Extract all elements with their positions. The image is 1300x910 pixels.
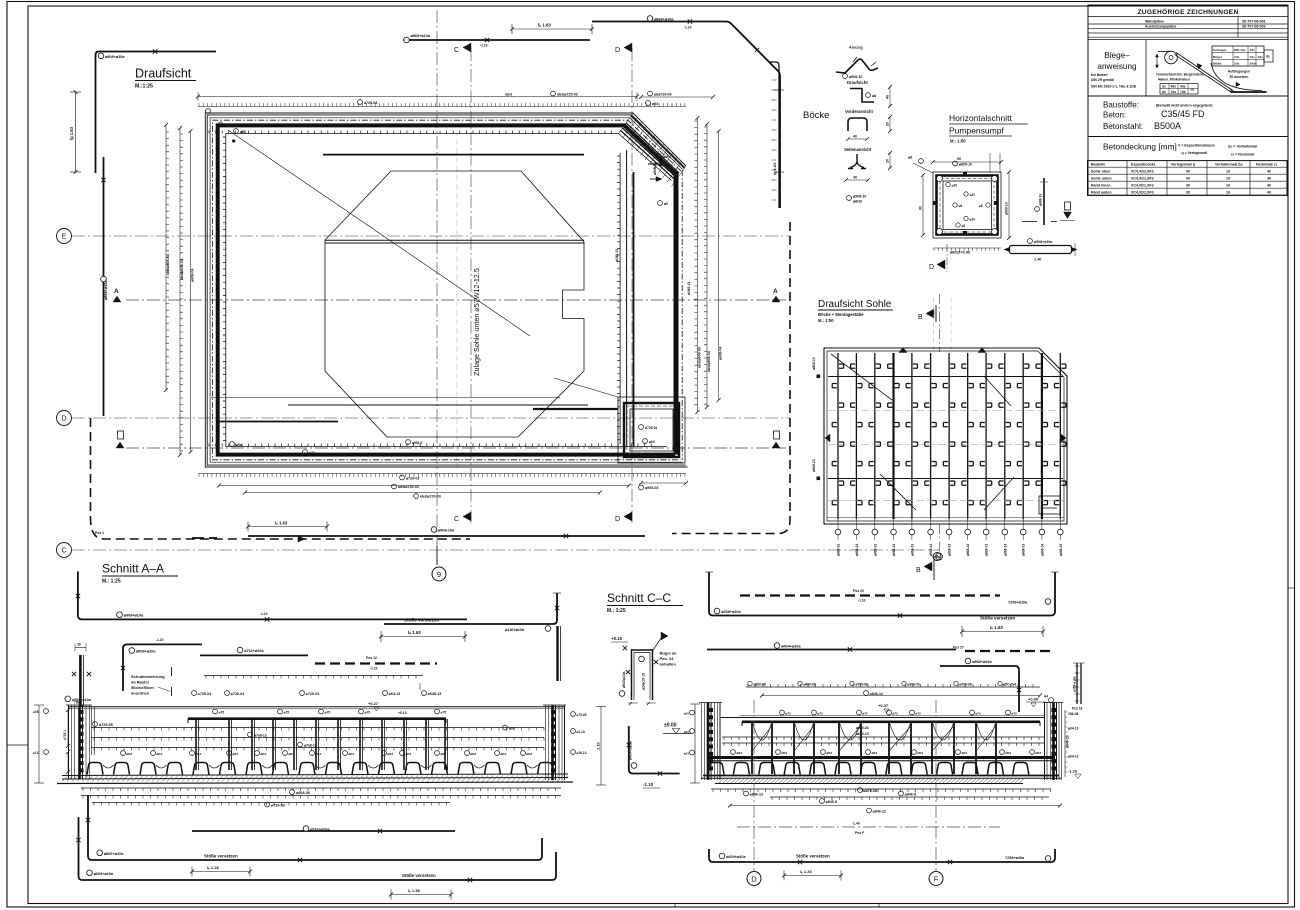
svg-text:⌀64-13: ⌀64-13 <box>389 692 401 696</box>
svg-text:⌀808-13: ⌀808-13 <box>1039 194 1043 206</box>
svg-text:⌀808-13: ⌀808-13 <box>985 544 989 556</box>
svg-text:⌀905-03: ⌀905-03 <box>645 486 658 490</box>
svg-text:90: 90 <box>957 157 961 161</box>
svg-text:⌀460-08: ⌀460-08 <box>803 683 815 687</box>
svg-text:⌀04: ⌀04 <box>649 440 655 444</box>
svg-text:⌀908+⌀10a: ⌀908+⌀10a <box>1034 240 1053 244</box>
svg-text:2ds: 2ds <box>1258 55 1264 59</box>
svg-text:bei Bedarf: bei Bedarf <box>1091 73 1108 77</box>
svg-text:Expositionskl.: Expositionskl. <box>1131 162 1156 166</box>
svg-text:⌀7a8-13: ⌀7a8-13 <box>304 744 317 748</box>
svg-text:⌀640-13: ⌀640-13 <box>856 732 869 736</box>
svg-text:⌀03: ⌀03 <box>652 102 658 106</box>
svg-text:⌀B4: ⌀B4 <box>440 752 446 756</box>
svg-text:⌀25: ⌀25 <box>684 712 690 716</box>
svg-text:⌀868+⌀10a: ⌀868+⌀10a <box>411 34 431 38</box>
svg-text:Böcke: Böcke <box>803 110 829 121</box>
svg-text:2ds: 2ds <box>1234 55 1240 59</box>
svg-text:⌀866+⌀10a: ⌀866+⌀10a <box>104 852 124 856</box>
svg-text:⌀808-13: ⌀808-13 <box>812 357 816 370</box>
svg-text:⌀B4: ⌀B4 <box>387 752 393 756</box>
svg-text:Ausrüstungspläne: Ausrüstungspläne <box>1145 25 1177 29</box>
svg-text:9: 9 <box>437 570 441 579</box>
svg-text:ds: ds <box>1162 90 1166 94</box>
svg-text:⌀725-1: ⌀725-1 <box>63 730 67 740</box>
svg-text:⌀908-14: ⌀908-14 <box>1040 544 1044 556</box>
svg-text:Haken, Winkelhaken: Haken, Winkelhaken <box>1158 78 1190 82</box>
svg-text:⌀808-13: ⌀808-13 <box>837 544 841 556</box>
svg-text:⌀808-04: ⌀808-04 <box>653 162 657 175</box>
svg-text:⌀75: ⌀75 <box>365 711 371 715</box>
svg-text:Pos. 24: Pos. 24 <box>660 656 675 661</box>
svg-text:⌀B4: ⌀B4 <box>156 752 162 756</box>
svg-text:Verlegemaß q: Verlegemaß q <box>1171 162 1195 166</box>
svg-text:⌀75: ⌀75 <box>219 711 225 715</box>
svg-text:C: C <box>454 47 459 54</box>
svg-text:⌀908+⌀10a: ⌀908+⌀10a <box>105 55 125 59</box>
svg-text:⌀808-13: ⌀808-13 <box>1059 544 1063 556</box>
svg-text:Schnitt A–A: Schnitt A–A <box>102 562 164 576</box>
svg-text:lₖ 1.33: lₖ 1.33 <box>800 869 812 874</box>
svg-text:⌀870-08: ⌀870-08 <box>864 789 877 793</box>
svg-text:C: C <box>61 548 66 555</box>
svg-text:-1.20: -1.20 <box>1068 769 1078 774</box>
svg-text:⌀908-14: ⌀908-14 <box>929 544 933 556</box>
svg-text:Biege–: Biege– <box>1104 51 1130 60</box>
svg-text:⌀110+⌀10a: ⌀110+⌀10a <box>505 628 525 632</box>
svg-text:-1.10: -1.10 <box>684 26 692 30</box>
svg-text:⌀03: ⌀03 <box>509 727 515 731</box>
svg-text:-1.10: -1.10 <box>643 782 654 787</box>
svg-text:40: 40 <box>886 95 890 99</box>
svg-text:⌀700-08: ⌀700-08 <box>959 683 971 687</box>
svg-text:⌀8: ⌀8 <box>959 204 963 208</box>
svg-text:lₖ 1.63: lₖ 1.63 <box>408 630 421 635</box>
svg-text:7ds: 7ds <box>1250 55 1256 59</box>
svg-text:30: 30 <box>1186 176 1190 180</box>
svg-text:E: E <box>62 234 67 241</box>
svg-text:⌀846-12: ⌀846-12 <box>873 810 886 814</box>
svg-text:Vorhaltemaß Δc: Vorhaltemaß Δc <box>1215 162 1243 166</box>
svg-text:Horizontalschnitt: Horizontalschnitt <box>949 113 1012 123</box>
svg-text:⌀B4: ⌀B4 <box>405 752 411 756</box>
svg-text:⌀75: ⌀75 <box>284 711 290 715</box>
svg-text:im Raster: im Raster <box>131 680 150 685</box>
svg-text:+0.10: +0.10 <box>611 636 623 641</box>
svg-text:-1.10: -1.10 <box>260 612 268 616</box>
svg-text:B: B <box>918 314 923 321</box>
svg-text:⌀846-8: ⌀846-8 <box>826 800 837 804</box>
svg-text:abst⌀729-03: abst⌀729-03 <box>420 495 441 499</box>
svg-text:2ds: 2ds <box>1234 62 1240 66</box>
svg-text:(Bemaßt nicht anders angegeben: (Bemaßt nicht anders angegeben) <box>1156 104 1212 108</box>
svg-text:anordnen: anordnen <box>131 691 150 696</box>
svg-text:⌀B4: ⌀B4 <box>260 752 266 756</box>
svg-text:⌀725-04: ⌀725-04 <box>645 426 657 430</box>
svg-text:⌀846-8: ⌀846-8 <box>905 793 916 797</box>
svg-text:⌀20: ⌀20 <box>970 193 976 197</box>
svg-text:⌀75: ⌀75 <box>1011 712 1017 716</box>
svg-text:⌀360-7a: ⌀360-7a <box>907 683 919 687</box>
svg-text:B500A: B500A <box>1154 121 1181 131</box>
svg-text:anweisung: anweisung <box>1097 62 1137 71</box>
svg-text:⌀729-03: ⌀729-03 <box>406 477 419 481</box>
svg-text:D: D <box>61 416 66 423</box>
svg-text:⌀75: ⌀75 <box>892 712 898 716</box>
svg-text:lₖ 1.63: lₖ 1.63 <box>990 625 1003 630</box>
svg-text:⌀908-10: ⌀908-10 <box>853 195 866 199</box>
svg-text:M.: 1:50: M.: 1:50 <box>950 139 966 144</box>
svg-text:D: D <box>615 516 620 523</box>
svg-text:⌀80: ⌀80 <box>663 155 669 159</box>
svg-text:10: 10 <box>1226 190 1230 194</box>
svg-text:1.10: 1.10 <box>596 741 601 750</box>
svg-text:X = Expositionsklasse: X = Expositionsklasse <box>1178 144 1215 148</box>
svg-text:⌀13: ⌀13 <box>684 752 690 756</box>
svg-text:abst⌀729-03: abst⌀729-03 <box>557 93 578 97</box>
svg-text:⌀2-13: ⌀2-13 <box>576 730 585 734</box>
svg-text:C: C <box>454 516 459 523</box>
svg-text:20: 20 <box>886 159 890 163</box>
svg-text:⌀75: ⌀75 <box>785 712 791 716</box>
svg-text:-1.10: -1.10 <box>858 599 866 603</box>
svg-text:⌀05: ⌀05 <box>33 710 39 714</box>
svg-text:Stöße versetzen: Stöße versetzen <box>980 616 1015 621</box>
svg-text:Beton:: Beton: <box>1103 111 1126 120</box>
svg-text:⌀8: ⌀8 <box>872 94 876 98</box>
svg-text:Bauteile: Bauteile <box>1091 162 1105 166</box>
svg-text:⌀761+⌀10a: ⌀761+⌀10a <box>244 649 264 653</box>
svg-text:⌀500-13: ⌀500-13 <box>1005 202 1009 215</box>
svg-text:Stöße versetzen: Stöße versetzen <box>796 854 830 859</box>
svg-text:⌀8/20: ⌀8/20 <box>853 200 862 204</box>
svg-text:20ds: 20ds <box>1250 62 1257 66</box>
svg-text:⌀75: ⌀75 <box>441 711 447 715</box>
svg-text:Pos 1: Pos 1 <box>95 531 104 535</box>
svg-text:⌀908-14: ⌀908-14 <box>892 544 896 556</box>
svg-text:Rand innen: Rand innen <box>1091 183 1111 187</box>
svg-text:7258+⌀10a: 7258+⌀10a <box>1008 601 1028 605</box>
svg-text:⌀B4: ⌀B4 <box>348 752 354 756</box>
svg-text:⌀1N5-13: ⌀1N5-13 <box>687 282 691 295</box>
svg-text:B: B <box>916 567 921 574</box>
svg-text:Wandpläne: Wandpläne <box>1145 19 1164 23</box>
svg-text:+0.90: +0.90 <box>1028 697 1039 702</box>
svg-text:⌀B4: ⌀B4 <box>826 751 832 755</box>
svg-text:40: 40 <box>853 135 857 139</box>
svg-text:⌀846-13: ⌀846-13 <box>1066 735 1070 748</box>
svg-text:⌀B4: ⌀B4 <box>288 752 294 756</box>
svg-text:75B: 75B <box>74 701 81 705</box>
svg-text:⌀908-14: ⌀908-14 <box>855 544 859 556</box>
svg-text:abst: abst <box>505 93 513 97</box>
svg-text:Sohle unten: Sohle unten <box>1091 176 1112 180</box>
svg-text:⌀808-13: ⌀808-13 <box>1022 544 1026 556</box>
svg-text:⌀952-0: ⌀952-0 <box>412 441 423 445</box>
svg-text:lₖ 1.63: lₖ 1.63 <box>538 23 551 28</box>
svg-text:DIN 4ds: DIN 4ds <box>1234 48 1246 52</box>
svg-text:⌀B4: ⌀B4 <box>736 751 742 755</box>
svg-text:cₖ = Nennmaß: cₖ = Nennmaß <box>1231 153 1255 157</box>
svg-text:⌀36-13: ⌀36-13 <box>576 751 586 755</box>
svg-text:DIN EN 1992-1-1, Tab. 8.1DE: DIN EN 1992-1-1, Tab. 8.1DE <box>1091 85 1137 89</box>
svg-text:Draufsicht: Draufsicht <box>135 67 192 81</box>
svg-text:⌀808-13: ⌀808-13 <box>873 544 877 556</box>
svg-text:Betonstahl:: Betonstahl: <box>1103 122 1143 131</box>
svg-text:-1.10: -1.10 <box>156 638 164 642</box>
svg-text:lg 1.63: lg 1.63 <box>772 162 777 175</box>
svg-text:⌀908-14: ⌀908-14 <box>1003 544 1007 556</box>
svg-text:30-707-08-002: 30-707-08-002 <box>1242 25 1266 29</box>
svg-text:⌀20: ⌀20 <box>970 218 976 222</box>
svg-text:50 ansetzen: 50 ansetzen <box>1230 75 1249 79</box>
svg-text:q = Verlegemaß: q = Verlegemaß <box>1182 151 1209 155</box>
svg-text:Pos 20: Pos 20 <box>853 589 864 593</box>
svg-text:⌀B4: ⌀B4 <box>526 752 532 756</box>
svg-text:XC4,XD1,XF3: XC4,XD1,XF3 <box>1131 190 1154 194</box>
svg-text:⌀608-04: ⌀608-04 <box>191 269 195 282</box>
svg-text:Stöße versetzen: Stöße versetzen <box>402 873 436 878</box>
svg-text:abst⌀608-04: abst⌀608-04 <box>180 259 184 280</box>
svg-text:⌀B4: ⌀B4 <box>195 752 201 756</box>
svg-text:20: 20 <box>886 122 890 126</box>
svg-text:+0.27: +0.27 <box>368 701 379 706</box>
svg-text:Stöße versetzen: Stöße versetzen <box>204 854 238 859</box>
svg-text:⌀75: ⌀75 <box>862 712 868 716</box>
svg-text:Sohle oben: Sohle oben <box>1091 169 1110 173</box>
svg-text:D: D <box>751 874 757 883</box>
svg-text:Δc = Vorhaltemaß: Δc = Vorhaltemaß <box>1228 145 1258 149</box>
svg-text:⌀B4: ⌀B4 <box>917 751 923 755</box>
svg-text:⌀908+⌀10a: ⌀908+⌀10a <box>104 280 108 300</box>
svg-text:⌀5a: ⌀5a <box>236 443 242 447</box>
svg-text:⌀805-10: ⌀805-10 <box>959 163 972 167</box>
svg-text:ds: ds <box>1162 85 1166 89</box>
svg-text:lₖ 1.38: lₖ 1.38 <box>408 888 420 893</box>
svg-text:⌀908-10a: ⌀908-10a <box>438 529 455 533</box>
svg-text:Pos P: Pos P <box>855 831 865 835</box>
svg-text:4ds: 4ds <box>1171 85 1177 89</box>
svg-text:abst⌀608-04: abst⌀608-04 <box>166 254 170 275</box>
svg-text:10: 10 <box>1226 183 1230 187</box>
svg-text:ds: ds <box>1266 55 1270 59</box>
svg-text:⌀404+⌀10a: ⌀404+⌀10a <box>726 855 746 859</box>
svg-text:Stäbe: Stäbe <box>1213 62 1222 66</box>
svg-text:C35/45 FD: C35/45 FD <box>1161 109 1205 119</box>
svg-text:lg 1.63: lg 1.63 <box>69 126 74 140</box>
svg-text:⌀B4: ⌀B4 <box>1035 751 1041 755</box>
svg-text:+0.10: +0.10 <box>398 711 407 715</box>
svg-text:⌀608-08: ⌀608-08 <box>296 791 310 795</box>
svg-text:⌀B4: ⌀B4 <box>315 752 321 756</box>
svg-text:ZUGEHÖRIGE ZEICHNUNGEN: ZUGEHÖRIGE ZEICHNUNGEN <box>1137 7 1238 16</box>
svg-text:Trommeldurchm. Biegerollend.: Trommeldurchm. Biegerollend. <box>1156 73 1205 77</box>
svg-text:7ds: 7ds <box>1171 90 1177 94</box>
svg-text:⌀729-04: ⌀729-04 <box>231 692 246 696</box>
svg-text:40: 40 <box>1267 176 1271 180</box>
svg-text:⌀846-13: ⌀846-13 <box>750 793 763 797</box>
svg-text:⌀75: ⌀75 <box>325 711 331 715</box>
svg-text:⌀04-13: ⌀04-13 <box>1068 727 1079 731</box>
svg-text:-1.10: -1.10 <box>480 44 488 48</box>
svg-text:abst⌀608-04: abst⌀608-04 <box>707 351 711 372</box>
svg-text:⌀1N5-13: ⌀1N5-13 <box>615 249 619 262</box>
svg-text:Schnitt C–C: Schnitt C–C <box>607 591 671 605</box>
svg-text:⌀75: ⌀75 <box>975 712 981 716</box>
svg-text:Draufsicht Sohle: Draufsicht Sohle <box>818 299 892 310</box>
svg-text:⌀8: ⌀8 <box>979 204 983 208</box>
svg-text:-1.10: -1.10 <box>370 667 378 671</box>
svg-text:Pos 12: Pos 12 <box>366 656 377 660</box>
svg-text:ds: ds <box>1191 88 1195 92</box>
svg-text:⌀72: ⌀72 <box>309 451 315 455</box>
svg-text:⌀608-04: ⌀608-04 <box>719 347 723 360</box>
svg-text:⌀13: ⌀13 <box>33 751 39 755</box>
svg-text:⌀980+⌀10a: ⌀980+⌀10a <box>972 660 992 664</box>
svg-text:⌀24⌀10-15: ⌀24⌀10-15 <box>641 673 645 690</box>
svg-text:⌀729-03: ⌀729-03 <box>364 101 377 105</box>
svg-text:XC4,XD1,XF3: XC4,XD1,XF3 <box>1131 183 1154 187</box>
svg-text:M.: 1:25: M.: 1:25 <box>102 579 121 585</box>
svg-text:⌀808-13: ⌀808-13 <box>910 544 914 556</box>
svg-text:D: D <box>929 264 934 271</box>
svg-text:A4: A4 <box>1044 695 1048 699</box>
svg-text:⌀75: ⌀75 <box>915 712 921 716</box>
svg-text:lₖ 1.63: lₖ 1.63 <box>275 521 288 526</box>
svg-text:XC4,XD1,XF3: XC4,XD1,XF3 <box>1131 176 1154 180</box>
svg-text:M.:1:25: M.:1:25 <box>135 84 153 90</box>
svg-text:⌀8: ⌀8 <box>908 156 912 160</box>
svg-text:Baustoffe:: Baustoffe: <box>1103 101 1139 110</box>
svg-text:4ds: 4ds <box>1180 85 1186 89</box>
svg-text:Böcke + Montagestäbe: Böcke + Montagestäbe <box>818 312 864 317</box>
svg-text:F: F <box>934 874 939 883</box>
svg-text:206-08: 206-08 <box>1068 712 1078 716</box>
svg-text:A: A <box>114 288 119 295</box>
svg-text:Auszug: Auszug <box>849 46 863 50</box>
svg-text:⌀B4: ⌀B4 <box>871 751 877 755</box>
svg-text:⌀5C-7a4: ⌀5C-7a4 <box>1003 683 1016 687</box>
svg-text:10: 10 <box>1226 169 1230 173</box>
svg-text:⌀20: ⌀20 <box>684 730 690 734</box>
svg-text:10: 10 <box>1226 176 1230 180</box>
svg-text:⌀7a8-13: ⌀7a8-13 <box>254 734 267 738</box>
svg-text:XC4,XD1,XF3: XC4,XD1,XF3 <box>1131 169 1154 173</box>
svg-text:50cmx50cm: 50cmx50cm <box>131 685 154 690</box>
svg-text:⌀908+⌀10a: ⌀908+⌀10a <box>124 614 144 618</box>
svg-text:⌀8/15=0.90: ⌀8/15=0.90 <box>950 250 971 255</box>
svg-text:⌀75-05: ⌀75-05 <box>576 713 586 717</box>
svg-text:Schubbewehrung: Schubbewehrung <box>131 674 165 679</box>
svg-text:1.40: 1.40 <box>1034 258 1041 262</box>
svg-text:⌀88: ⌀88 <box>240 130 246 134</box>
svg-text:-1.40: -1.40 <box>852 822 860 826</box>
svg-text:30-707-08-001: 30-707-08-001 <box>1242 19 1266 23</box>
svg-text:Vorderansicht: Vorderansicht <box>845 109 873 114</box>
svg-text:Pumpensumpf: Pumpensumpf <box>949 126 1004 136</box>
svg-text:30: 30 <box>1186 190 1190 194</box>
svg-text:⌀75: ⌀75 <box>817 712 823 716</box>
svg-text:⌀729-04: ⌀729-04 <box>306 692 321 696</box>
svg-text:⌀358-⌀10a: ⌀358-⌀10a <box>1073 676 1077 692</box>
svg-text:Betondeckung [mm]: Betondeckung [mm] <box>1103 142 1177 152</box>
svg-text:Schrägst.: Schrägst. <box>1213 48 1227 52</box>
svg-text:ab⌀729-03: ab⌀729-03 <box>654 93 672 97</box>
svg-text:A: A <box>773 288 778 295</box>
svg-text:⌀B20⌀10a: ⌀B20⌀10a <box>622 671 626 688</box>
svg-text:⌀761+⌀10a: ⌀761+⌀10a <box>310 828 330 832</box>
svg-text:40: 40 <box>1267 183 1271 187</box>
svg-text:⌀729-04: ⌀729-04 <box>198 692 213 696</box>
svg-text:⌀8: ⌀8 <box>962 224 966 228</box>
svg-text:D: D <box>615 47 620 54</box>
svg-text:90: 90 <box>919 206 923 210</box>
svg-text:⌀846-12: ⌀846-12 <box>870 692 883 696</box>
svg-text:Stöße versetzen: Stöße versetzen <box>404 618 439 623</box>
svg-text:⌀360-08: ⌀360-08 <box>753 683 765 687</box>
svg-text:⌀5: ⌀5 <box>664 202 668 206</box>
svg-text:⌀700-08: ⌀700-08 <box>855 683 867 687</box>
svg-text:Draufsicht: Draufsicht <box>847 80 868 85</box>
svg-text:Rand außen: Rand außen <box>1091 190 1112 194</box>
svg-text:⌀808-13: ⌀808-13 <box>948 544 952 556</box>
svg-text:7ds: 7ds <box>1180 90 1186 94</box>
svg-text:⌀404+⌀10a: ⌀404+⌀10a <box>781 645 801 649</box>
svg-text:M.: 1:50: M.: 1:50 <box>818 318 834 323</box>
svg-text:abst⌀608-04: abst⌀608-04 <box>698 347 702 368</box>
svg-text:⌀808-13: ⌀808-13 <box>812 459 816 472</box>
svg-text:30: 30 <box>1186 169 1190 173</box>
svg-text:DIN 2ff gemäß: DIN 2ff gemäß <box>1091 78 1114 82</box>
svg-text:⌀908-10: ⌀908-10 <box>849 75 862 79</box>
svg-text:⌀258+⌀10a: ⌀258+⌀10a <box>721 610 741 614</box>
svg-text:Bügel: Bügel <box>1213 55 1222 59</box>
svg-text:M.: 1:25: M.: 1:25 <box>607 608 626 614</box>
svg-text:⌀B4: ⌀B4 <box>961 751 967 755</box>
svg-text:⌀608+⌀10a: ⌀608+⌀10a <box>94 872 114 876</box>
svg-text:lₖ 1.28: lₖ 1.28 <box>207 865 219 870</box>
svg-text:⌀20: ⌀20 <box>952 184 958 188</box>
svg-text:⌀B4: ⌀B4 <box>500 752 506 756</box>
svg-text:Bügel an: Bügel an <box>660 651 677 656</box>
svg-text:40: 40 <box>1267 169 1271 173</box>
svg-text:Nennmaß cₖ: Nennmaß cₖ <box>1256 162 1278 166</box>
svg-text:Seitenansicht: Seitenansicht <box>844 147 872 152</box>
svg-text:⌀868+⌀10a: ⌀868+⌀10a <box>654 18 674 22</box>
svg-text:±0.00: ±0.00 <box>664 723 677 729</box>
svg-text:⌀729-08: ⌀729-08 <box>271 804 285 808</box>
svg-text:⌀B4: ⌀B4 <box>781 751 787 755</box>
svg-text:⌀B4: ⌀B4 <box>126 752 132 756</box>
svg-text:30: 30 <box>77 643 81 647</box>
svg-text:⌀908+⌀10a: ⌀908+⌀10a <box>136 650 156 654</box>
svg-text:Aufbiegungen: Aufbiegungen <box>1228 70 1250 74</box>
svg-text:40: 40 <box>853 176 857 180</box>
svg-text:4ds: 4ds <box>1250 48 1256 52</box>
svg-text:30: 30 <box>1186 183 1190 187</box>
svg-text:⌀B4: ⌀B4 <box>470 752 476 756</box>
svg-text:Zulage Sohle unten ⌀57W12-12.5: Zulage Sohle unten ⌀57W12-12.5 <box>472 268 481 376</box>
svg-text:⌀B4: ⌀B4 <box>1005 751 1011 755</box>
svg-text:40: 40 <box>1267 190 1271 194</box>
svg-text:anhalten: anhalten <box>660 662 677 667</box>
svg-text:⌀B4: ⌀B4 <box>232 752 238 756</box>
svg-text:⌀04-13: ⌀04-13 <box>1068 755 1079 759</box>
svg-text:⌀648-13: ⌀648-13 <box>428 692 442 696</box>
svg-text:⌀729-05: ⌀729-05 <box>99 723 113 727</box>
svg-text:7258+⌀10a: 7258+⌀10a <box>1005 856 1025 860</box>
svg-text:Pos 16: Pos 16 <box>1072 707 1083 711</box>
